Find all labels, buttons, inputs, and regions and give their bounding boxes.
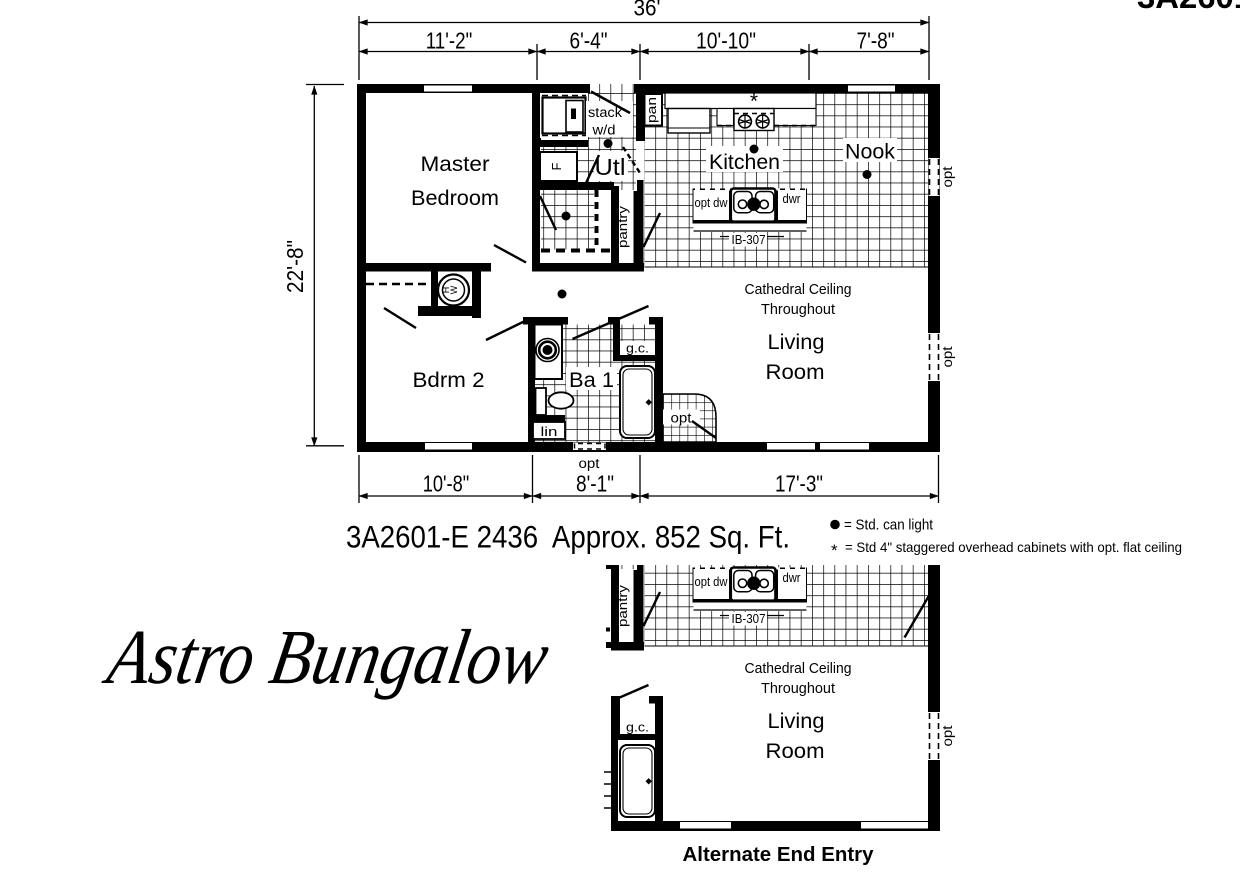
- svg-text:10'-8": 10'-8": [423, 471, 470, 497]
- svg-text:8'-1": 8'-1": [576, 471, 614, 497]
- svg-text:opt: opt: [671, 411, 692, 426]
- svg-text:11'-2": 11'-2": [426, 28, 473, 54]
- svg-text:3A2601-E 2436 Approx. 852 Sq.: 3A2601-E 2436 Approx. 852 Sq. Ft.: [346, 519, 790, 555]
- svg-text:36': 36': [634, 0, 661, 21]
- svg-text:opt: opt: [579, 456, 600, 471]
- svg-text:7'-8": 7'-8": [857, 28, 895, 54]
- svg-text:22'-8": 22'-8": [282, 240, 308, 293]
- svg-text:17'-3": 17'-3": [775, 471, 823, 497]
- svg-text:Ba 1: Ba 1: [569, 369, 614, 392]
- svg-text:Alternate End Entry: Alternate End Entry: [683, 844, 875, 866]
- svg-text:opt: opt: [940, 166, 955, 187]
- svg-text:= Std. can light: = Std. can light: [844, 518, 933, 534]
- svg-text:3A2601: 3A2601: [1137, 0, 1240, 15]
- svg-text:10'-10": 10'-10": [696, 28, 756, 54]
- svg-text:= Std 4" staggered overhead ca: = Std 4" staggered overhead cabinets wit…: [845, 539, 1182, 555]
- svg-text:Astro Bungalow: Astro Bungalow: [98, 615, 556, 701]
- svg-text:*: *: [831, 541, 838, 560]
- svg-text:6'-4": 6'-4": [570, 28, 608, 54]
